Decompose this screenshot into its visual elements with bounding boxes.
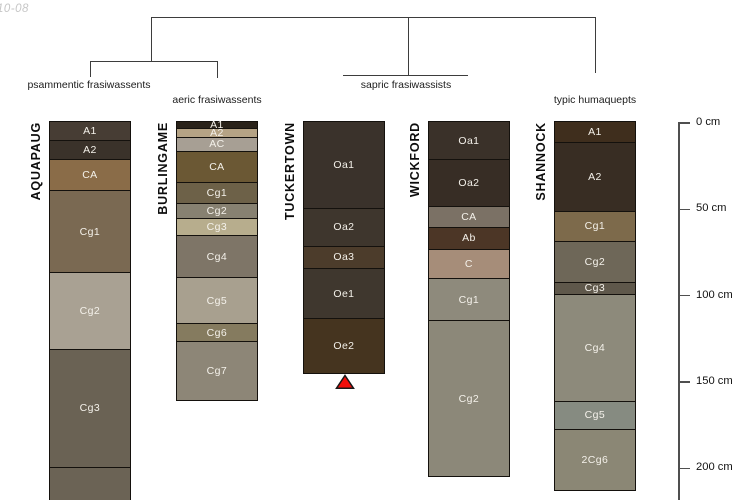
horizon-ca: CA <box>50 160 130 191</box>
horizon-oa2: Oa2 <box>429 160 509 207</box>
tree-bracket-sapric <box>343 75 468 76</box>
soil-profile-wickford: Oa1Oa2CAAbCCg1Cg2 <box>428 121 510 477</box>
horizon-label: Cg7 <box>207 366 227 376</box>
horizon-a1: A1 <box>50 122 130 141</box>
soil-profile-tuckertown: Oa1Oa2Oa3Oe1Oe2 <box>303 121 385 373</box>
horizon-oe1: Oe1 <box>304 269 384 319</box>
horizon-ca: CA <box>429 207 509 228</box>
horizon-cg3: Cg3 <box>555 283 635 295</box>
soil-profile-aquapaug: A1A2CACg1Cg2Cg3 <box>49 121 131 500</box>
horizon-label: A2 <box>83 145 97 155</box>
horizon-label: Oe2 <box>333 341 354 351</box>
horizon-cg5: Cg5 <box>555 402 635 430</box>
depth-tick-200 <box>678 468 690 470</box>
horizon-label: Oa1 <box>458 136 479 146</box>
group-label-aeric-frasiwassents: aeric frasiwassents <box>172 94 261 106</box>
red-triangle-marker <box>335 374 355 395</box>
profile-name-tuckertown: TUCKERTOWN <box>283 122 298 220</box>
horizon-label: Cg3 <box>585 283 605 293</box>
horizon-oa3: Oa3 <box>304 247 384 269</box>
horizon-cg7: Cg7 <box>177 342 257 401</box>
horizon-cg1: Cg1 <box>50 191 130 272</box>
horizon-label: Oa2 <box>458 178 479 188</box>
horizon-oa2: Oa2 <box>304 209 384 247</box>
horizon-ca: CA <box>177 152 257 183</box>
horizon-label: A1 <box>83 126 97 136</box>
horizon-a1: A1 <box>555 122 635 143</box>
horizon-label: Cg1 <box>459 295 479 305</box>
depth-tick-label-200: 200 cm <box>696 460 733 475</box>
horizon-label: Cg4 <box>207 252 227 262</box>
depth-tick-label-50: 50 cm <box>696 201 726 216</box>
horizon-label: Cg2 <box>80 306 100 316</box>
horizon-label: Cg5 <box>207 296 227 306</box>
horizon-label: Cg2 <box>585 257 605 267</box>
soil-profile-figure: 10-08 psammentic frasiwassents aeric fra… <box>0 0 750 500</box>
horizon-label: Ab <box>462 233 476 243</box>
horizon-a2: A2 <box>177 129 257 138</box>
depth-tick-label-150: 150 cm <box>696 374 733 389</box>
group-label-typic-humaquepts: typic humaquepts <box>554 94 636 106</box>
horizon-label: A2 <box>588 172 602 182</box>
tree-drop-aeric <box>217 61 218 78</box>
horizon-c: C <box>429 250 509 279</box>
tree-root-line <box>151 17 596 18</box>
horizon-ab: Ab <box>429 228 509 250</box>
horizon-label: Cg2 <box>459 394 479 404</box>
tree-branch-middle <box>408 17 409 75</box>
horizon-cg4: Cg4 <box>177 236 257 277</box>
horizon-label: AC <box>209 139 224 149</box>
tree-branch-left <box>151 17 152 62</box>
horizon-label: CA <box>461 212 476 222</box>
horizon-2cg6: 2Cg6 <box>555 430 635 490</box>
horizon-oa1: Oa1 <box>304 122 384 208</box>
horizon-cg2: Cg2 <box>50 273 130 351</box>
triangle-up-icon <box>335 374 355 390</box>
tree-branch-right <box>595 17 596 73</box>
horizon-label: CA <box>82 170 97 180</box>
horizon-oe2: Oe2 <box>304 319 384 373</box>
watermark-date: 10-08 <box>0 3 29 15</box>
depth-tick-50 <box>678 209 690 211</box>
depth-tick-150 <box>678 381 690 383</box>
horizon-a2: A2 <box>555 143 635 212</box>
horizon-oa1: Oa1 <box>429 122 509 160</box>
horizon-label: C <box>465 259 473 269</box>
horizon-cg5: Cg5 <box>177 278 257 325</box>
profile-name-wickford: WICKFORD <box>408 122 423 197</box>
horizon-cg4: Cg4 <box>555 295 635 402</box>
horizon-label: Oe1 <box>333 289 354 299</box>
depth-tick-label-100: 100 cm <box>696 288 733 303</box>
profile-name-shannock: SHANNOCK <box>534 122 549 201</box>
soil-profile-burlingame: A1A2ACCACg1Cg2Cg3Cg4Cg5Cg6Cg7 <box>176 121 258 401</box>
horizon-label: Cg2 <box>207 206 227 216</box>
horizon-label: Oa1 <box>333 160 354 170</box>
horizon-label: Cg1 <box>80 227 100 237</box>
horizon-label: Cg6 <box>207 328 227 338</box>
depth-tick-100 <box>678 295 690 297</box>
horizon-unlabeled <box>50 468 130 500</box>
group-label-psammentic-frasiwassents: psammentic frasiwassents <box>27 79 150 91</box>
horizon-label: Cg3 <box>207 222 227 232</box>
horizon-cg1: Cg1 <box>555 212 635 241</box>
horizon-cg2: Cg2 <box>429 321 509 476</box>
horizon-cg2: Cg2 <box>177 204 257 220</box>
horizon-label: A2 <box>210 128 224 138</box>
tree-bracket-left <box>90 61 218 62</box>
horizon-label: Cg1 <box>585 221 605 231</box>
horizon-cg1: Cg1 <box>429 279 509 320</box>
horizon-ac: AC <box>177 138 257 152</box>
horizon-label: Cg1 <box>207 188 227 198</box>
horizon-label: Oa2 <box>333 222 354 232</box>
profile-name-aquapaug: AQUAPAUG <box>29 122 44 200</box>
soil-profile-shannock: A1A2Cg1Cg2Cg3Cg4Cg52Cg6 <box>554 121 636 491</box>
horizon-label: Cg5 <box>585 410 605 420</box>
depth-axis <box>678 122 680 500</box>
tree-drop-psammentic <box>90 61 91 77</box>
horizon-cg3: Cg3 <box>50 350 130 467</box>
group-label-sapric-frasiwassists: sapric frasiwassists <box>361 79 451 91</box>
horizon-cg3: Cg3 <box>177 219 257 236</box>
horizon-label: Oa3 <box>333 252 354 262</box>
horizon-label: CA <box>209 162 224 172</box>
depth-tick-0 <box>678 122 690 124</box>
profile-name-burlingame: BURLINGAME <box>156 122 171 215</box>
depth-tick-label-0: 0 cm <box>696 115 720 130</box>
horizon-label: Cg3 <box>80 403 100 413</box>
horizon-cg2: Cg2 <box>555 242 635 283</box>
horizon-label: 2Cg6 <box>582 455 609 465</box>
horizon-cg1: Cg1 <box>177 183 257 204</box>
horizon-label: Cg4 <box>585 343 605 353</box>
horizon-cg6: Cg6 <box>177 324 257 341</box>
horizon-a2: A2 <box>50 141 130 160</box>
horizon-label: A1 <box>588 127 602 137</box>
